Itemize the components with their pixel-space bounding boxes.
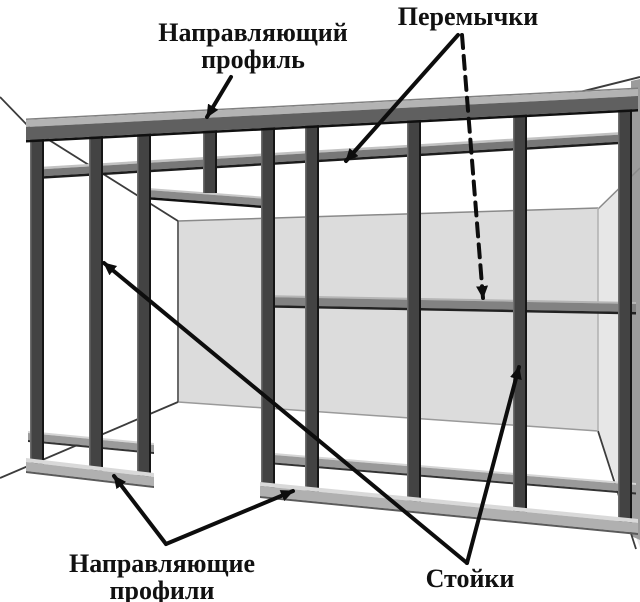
stud-9 xyxy=(618,107,632,526)
label-crossbars-line1: Перемычки xyxy=(386,3,550,30)
label-top-guide-profile-line1: Направляющий xyxy=(128,19,378,46)
label-studs-line1: Стойки xyxy=(396,565,544,592)
label-bottom-guide-profiles-line2: профили xyxy=(38,577,286,602)
stud-1 xyxy=(30,137,44,467)
stud-4-cripple-above-door xyxy=(203,129,217,193)
stud-7 xyxy=(407,118,421,505)
stud-2 xyxy=(89,134,103,474)
stud-3-door-jamb-left xyxy=(137,132,151,479)
diagram-canvas xyxy=(0,0,640,602)
label-bottom-guide-profiles-line1: Направляющие xyxy=(38,550,286,577)
label-crossbars: Перемычки xyxy=(386,3,550,30)
label-top-guide-profile-line2: профиль xyxy=(128,46,378,73)
framing-diagram: Направляющий профиль Перемычки Направляю… xyxy=(0,0,640,602)
label-bottom-guide-profiles: Направляющие профили xyxy=(38,550,286,602)
label-studs: Стойки xyxy=(396,565,544,592)
stud-5-door-jamb-right xyxy=(261,126,275,491)
stud-8 xyxy=(513,113,527,515)
label-top-guide-profile: Направляющий профиль xyxy=(128,19,378,73)
back-wall xyxy=(178,208,598,431)
